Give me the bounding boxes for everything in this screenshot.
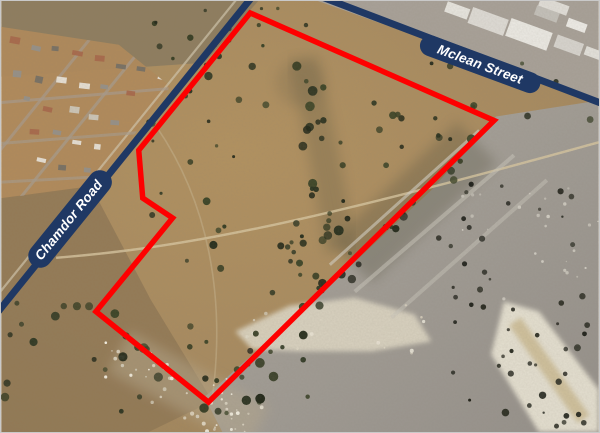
- aerial-map-canvas: Chamdor Road Mclean Street: [1, 1, 599, 432]
- aerial-map-figure: Chamdor Road Mclean Street: [0, 0, 600, 433]
